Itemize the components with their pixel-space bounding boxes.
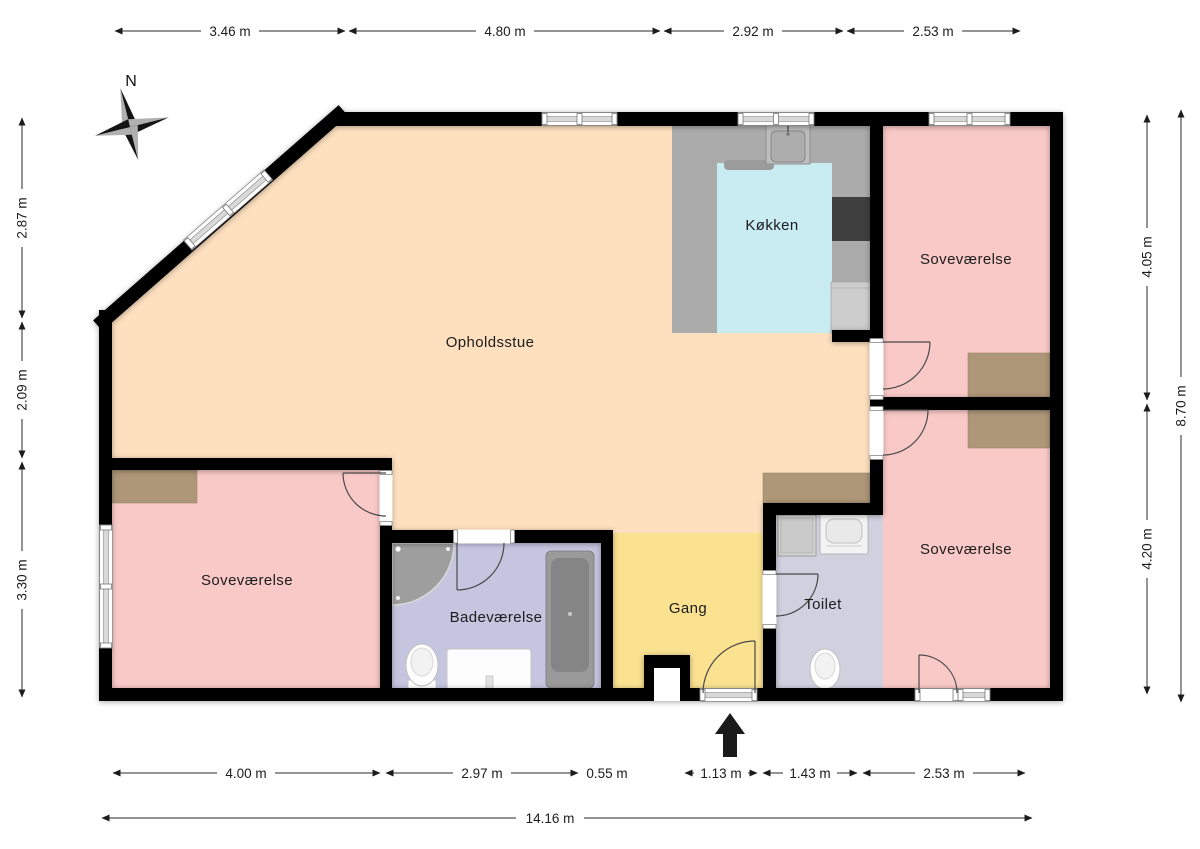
dim-top-4: 2.53 m xyxy=(847,22,1020,39)
entrance-niche-opening xyxy=(654,668,680,701)
compass: N xyxy=(85,73,177,169)
svg-text:2.87 m: 2.87 m xyxy=(15,197,30,238)
entrance-arrow-icon xyxy=(715,713,745,757)
label-hallway: Gang xyxy=(669,600,707,617)
wardrobe-bedroom-se xyxy=(968,410,1050,448)
label-bathroom: Badeværelse xyxy=(450,609,543,626)
dim-right-inner-2: 4.20 m xyxy=(1138,404,1156,694)
svg-text:4.05 m: 4.05 m xyxy=(1140,236,1155,277)
dim-top-3: 2.92 m xyxy=(664,22,843,39)
wardrobe-bedroom-ne xyxy=(968,353,1050,397)
toilet-bathroom-icon xyxy=(406,644,438,689)
wardrobe-bedroom-sw xyxy=(112,470,197,503)
svg-text:4.80 m: 4.80 m xyxy=(484,24,525,39)
dim-bottom-6: 2.53 m xyxy=(863,764,1025,781)
room-kitchen xyxy=(717,163,832,333)
cabinet-icon xyxy=(778,515,816,556)
dim-bottom-3: 0.55 m xyxy=(586,766,627,781)
label-bedroom-ne: Soveværelse xyxy=(920,251,1012,268)
dim-right-outer: 8.70 m xyxy=(1172,110,1190,702)
wall-toilet-top xyxy=(763,503,883,515)
wall-bedroom-divider xyxy=(870,397,1063,410)
wall-bedroom-sw-top xyxy=(99,458,392,470)
label-bedroom-sw: Soveværelse xyxy=(201,572,293,589)
compass-rose-icon xyxy=(85,79,177,169)
window-bedroom-ne-top xyxy=(929,113,1010,126)
dim-top-1: 3.46 m xyxy=(115,22,345,39)
label-bedroom-se: Soveværelse xyxy=(920,541,1012,558)
vanity-sink-icon xyxy=(447,649,531,690)
wall-bathroom-right xyxy=(601,530,613,701)
dim-bottom-5: 1.43 m xyxy=(763,764,857,781)
wardrobe-living xyxy=(763,473,870,503)
dim-bottom-2: 2.97 m xyxy=(386,764,578,781)
svg-text:2.97 m: 2.97 m xyxy=(461,766,502,781)
floorplan-page: Opholdsstue Køkken Soveværelse Soveværel… xyxy=(0,0,1200,849)
dim-bottom-1: 4.00 m xyxy=(113,764,380,781)
dishwasher-icon xyxy=(831,282,871,333)
dim-right-inner-1: 4.05 m xyxy=(1138,115,1156,400)
svg-text:3.46 m: 3.46 m xyxy=(209,24,250,39)
dim-bottom-4: 1.13 m xyxy=(685,764,757,781)
dim-left-2: 2.09 m xyxy=(13,322,31,458)
window-kitchen-top xyxy=(738,113,814,126)
svg-text:2.53 m: 2.53 m xyxy=(912,24,953,39)
window-bedroom-se-bottom xyxy=(958,689,990,702)
label-living: Opholdsstue xyxy=(446,334,535,351)
svg-text:8.70 m: 8.70 m xyxy=(1174,385,1189,426)
dim-overall-width: 14.16 m xyxy=(102,809,1032,826)
floorplan-drawing: Opholdsstue Køkken Soveværelse Soveværel… xyxy=(0,0,1200,849)
svg-text:4.00 m: 4.00 m xyxy=(225,766,266,781)
svg-text:14.16 m: 14.16 m xyxy=(526,811,575,826)
bathtub-icon xyxy=(546,551,594,688)
svg-text:0.55 m: 0.55 m xyxy=(586,766,627,781)
svg-text:2.53 m: 2.53 m xyxy=(923,766,964,781)
stove-icon xyxy=(832,197,871,241)
window-bedroom-sw-left xyxy=(100,525,113,648)
svg-text:2.09 m: 2.09 m xyxy=(15,369,30,410)
svg-text:2.92 m: 2.92 m xyxy=(732,24,773,39)
svg-text:1.43 m: 1.43 m xyxy=(789,766,830,781)
window-living-top xyxy=(542,113,617,126)
dim-left-1: 2.87 m xyxy=(13,118,31,318)
svg-text:4.20 m: 4.20 m xyxy=(1140,528,1155,569)
compass-north-label: N xyxy=(125,73,137,90)
washing-machine-icon xyxy=(820,513,868,554)
label-kitchen: Køkken xyxy=(745,217,798,234)
svg-text:3.30 m: 3.30 m xyxy=(15,559,30,600)
kitchen-sink-icon xyxy=(766,123,810,164)
label-toilet: Toilet xyxy=(804,596,842,613)
dim-left-3: 3.30 m xyxy=(13,462,31,697)
toilet-wc-icon xyxy=(810,649,840,689)
svg-text:1.13 m: 1.13 m xyxy=(700,766,741,781)
dim-top-2: 4.80 m xyxy=(349,22,660,39)
